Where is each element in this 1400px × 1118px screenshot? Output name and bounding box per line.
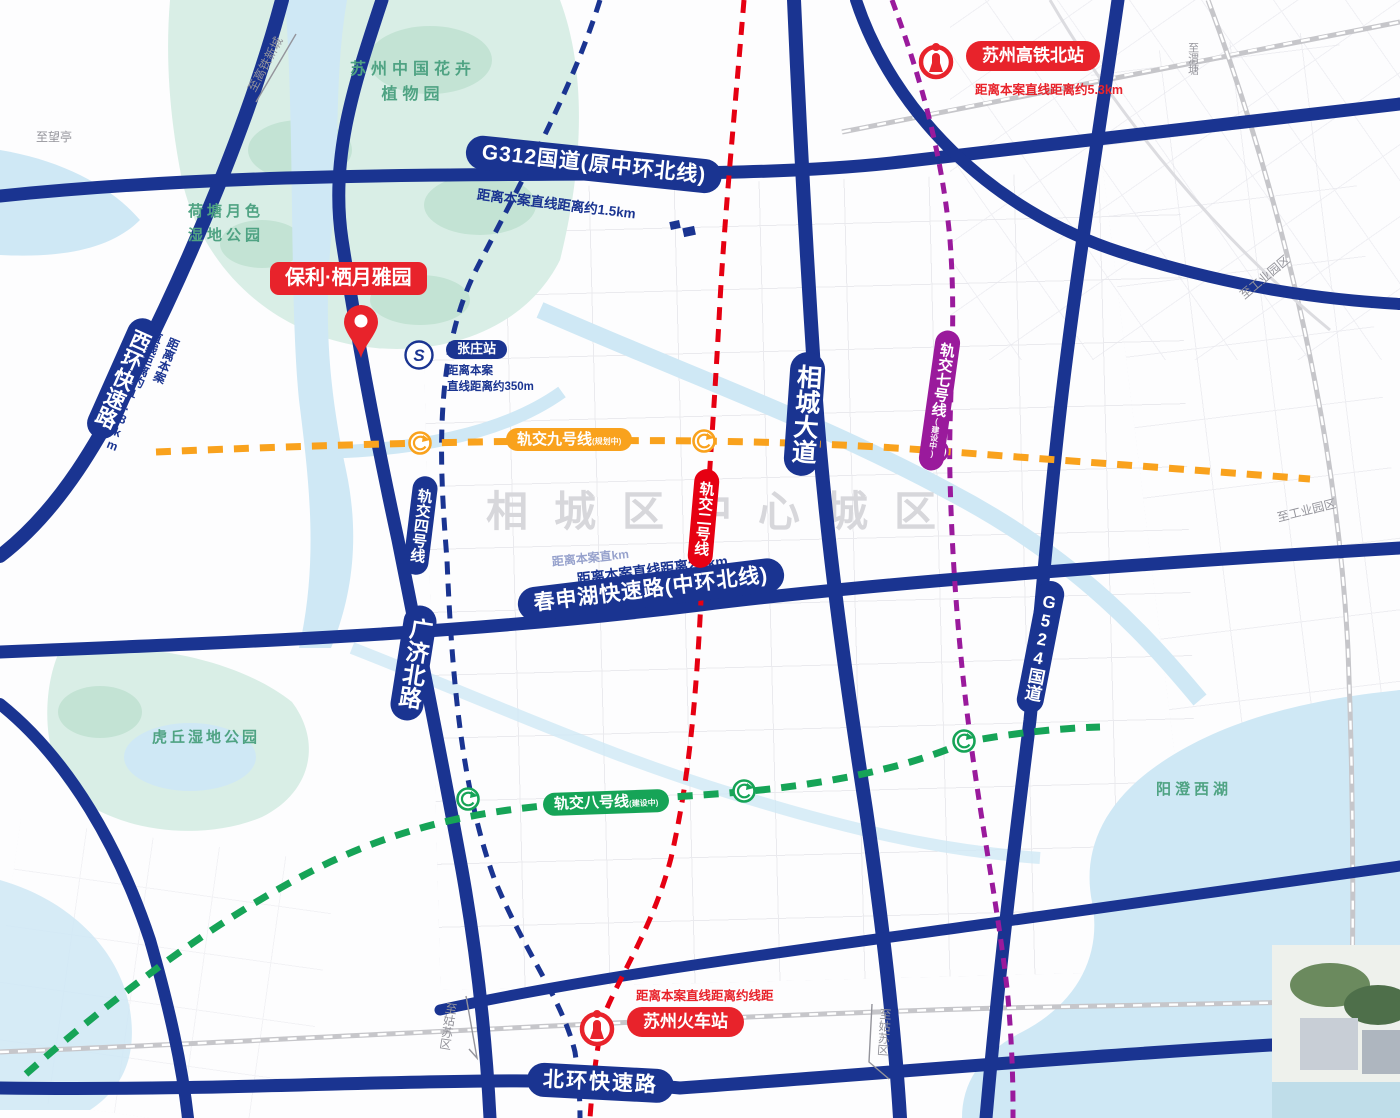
metro-line9-label: 轨交九号线(规划中) <box>506 428 632 451</box>
zhangzhuang-distance-line1: 距离本案 <box>447 363 534 379</box>
botanical-line1: 苏州中国花卉 <box>328 58 498 83</box>
huqiu-park-label: 虎丘湿地公园 <box>152 729 260 746</box>
transfer-icon <box>694 431 715 452</box>
photo-fragment <box>1272 945 1400 1118</box>
suzhou-station-distance: 距离本案直线距离约线距 <box>636 989 774 1003</box>
suzhou-station-label: 苏州火车站 <box>627 1007 744 1037</box>
location-map: 相城区中心城区 <box>0 0 1400 1118</box>
railway-logo-icon <box>921 43 951 77</box>
zhangzhuang-distance-line2: 直线距离约350m <box>447 379 534 395</box>
botanical-garden-label: 苏州中国花卉 植物园 <box>328 58 498 108</box>
metro-line8-label: 轨交八号线(建设中) <box>543 789 670 817</box>
metro-line8-text: 轨交八号线 <box>554 793 630 813</box>
edge-label-to-gusu-2: 至姑苏区 <box>874 1008 891 1057</box>
edge-label-to-weitang: 至渭塘 <box>1186 42 1199 75</box>
metro-logo-icon: S <box>406 342 433 369</box>
svg-text:S: S <box>413 346 425 365</box>
metro-line8-suffix: (建设中) <box>629 798 659 808</box>
railway-logo-icon <box>582 1010 612 1044</box>
hetang-line1: 荷塘月色 <box>170 200 282 224</box>
district-watermark: 相城区中心城区 <box>486 488 962 535</box>
hsr-north-distance: 距离本案直线距离约5.3km <box>975 83 1123 97</box>
project-banner: 保利·栖月雅园 <box>270 262 427 295</box>
transfer-icon <box>734 781 755 802</box>
metro-line9-suffix: (规划中) <box>592 437 621 446</box>
edge-label-to-wangting: 至望亭 <box>36 131 72 145</box>
botanical-line2: 植物园 <box>328 83 498 108</box>
hetang-park-label: 荷塘月色 湿地公园 <box>170 200 282 248</box>
metro-line9-text: 轨交九号线 <box>517 431 592 448</box>
metro-line7-suffix: (建设中) <box>927 416 942 459</box>
metro-line7-path <box>892 0 1013 1118</box>
yangcheng-lake-label: 阳澄西湖 <box>1156 781 1232 798</box>
hsr-north-station-label: 苏州高铁北站 <box>966 41 1100 71</box>
transfer-icon <box>458 789 479 810</box>
transfer-icon <box>954 731 975 752</box>
location-pin <box>344 305 378 358</box>
zhangzhuang-station-label: 张庄站 <box>446 340 507 359</box>
building-mark <box>669 220 696 237</box>
zhangzhuang-distance: 距离本案 直线距离约350m <box>447 363 534 395</box>
hetang-line2: 湿地公园 <box>170 224 282 248</box>
transfer-icon <box>410 433 431 454</box>
